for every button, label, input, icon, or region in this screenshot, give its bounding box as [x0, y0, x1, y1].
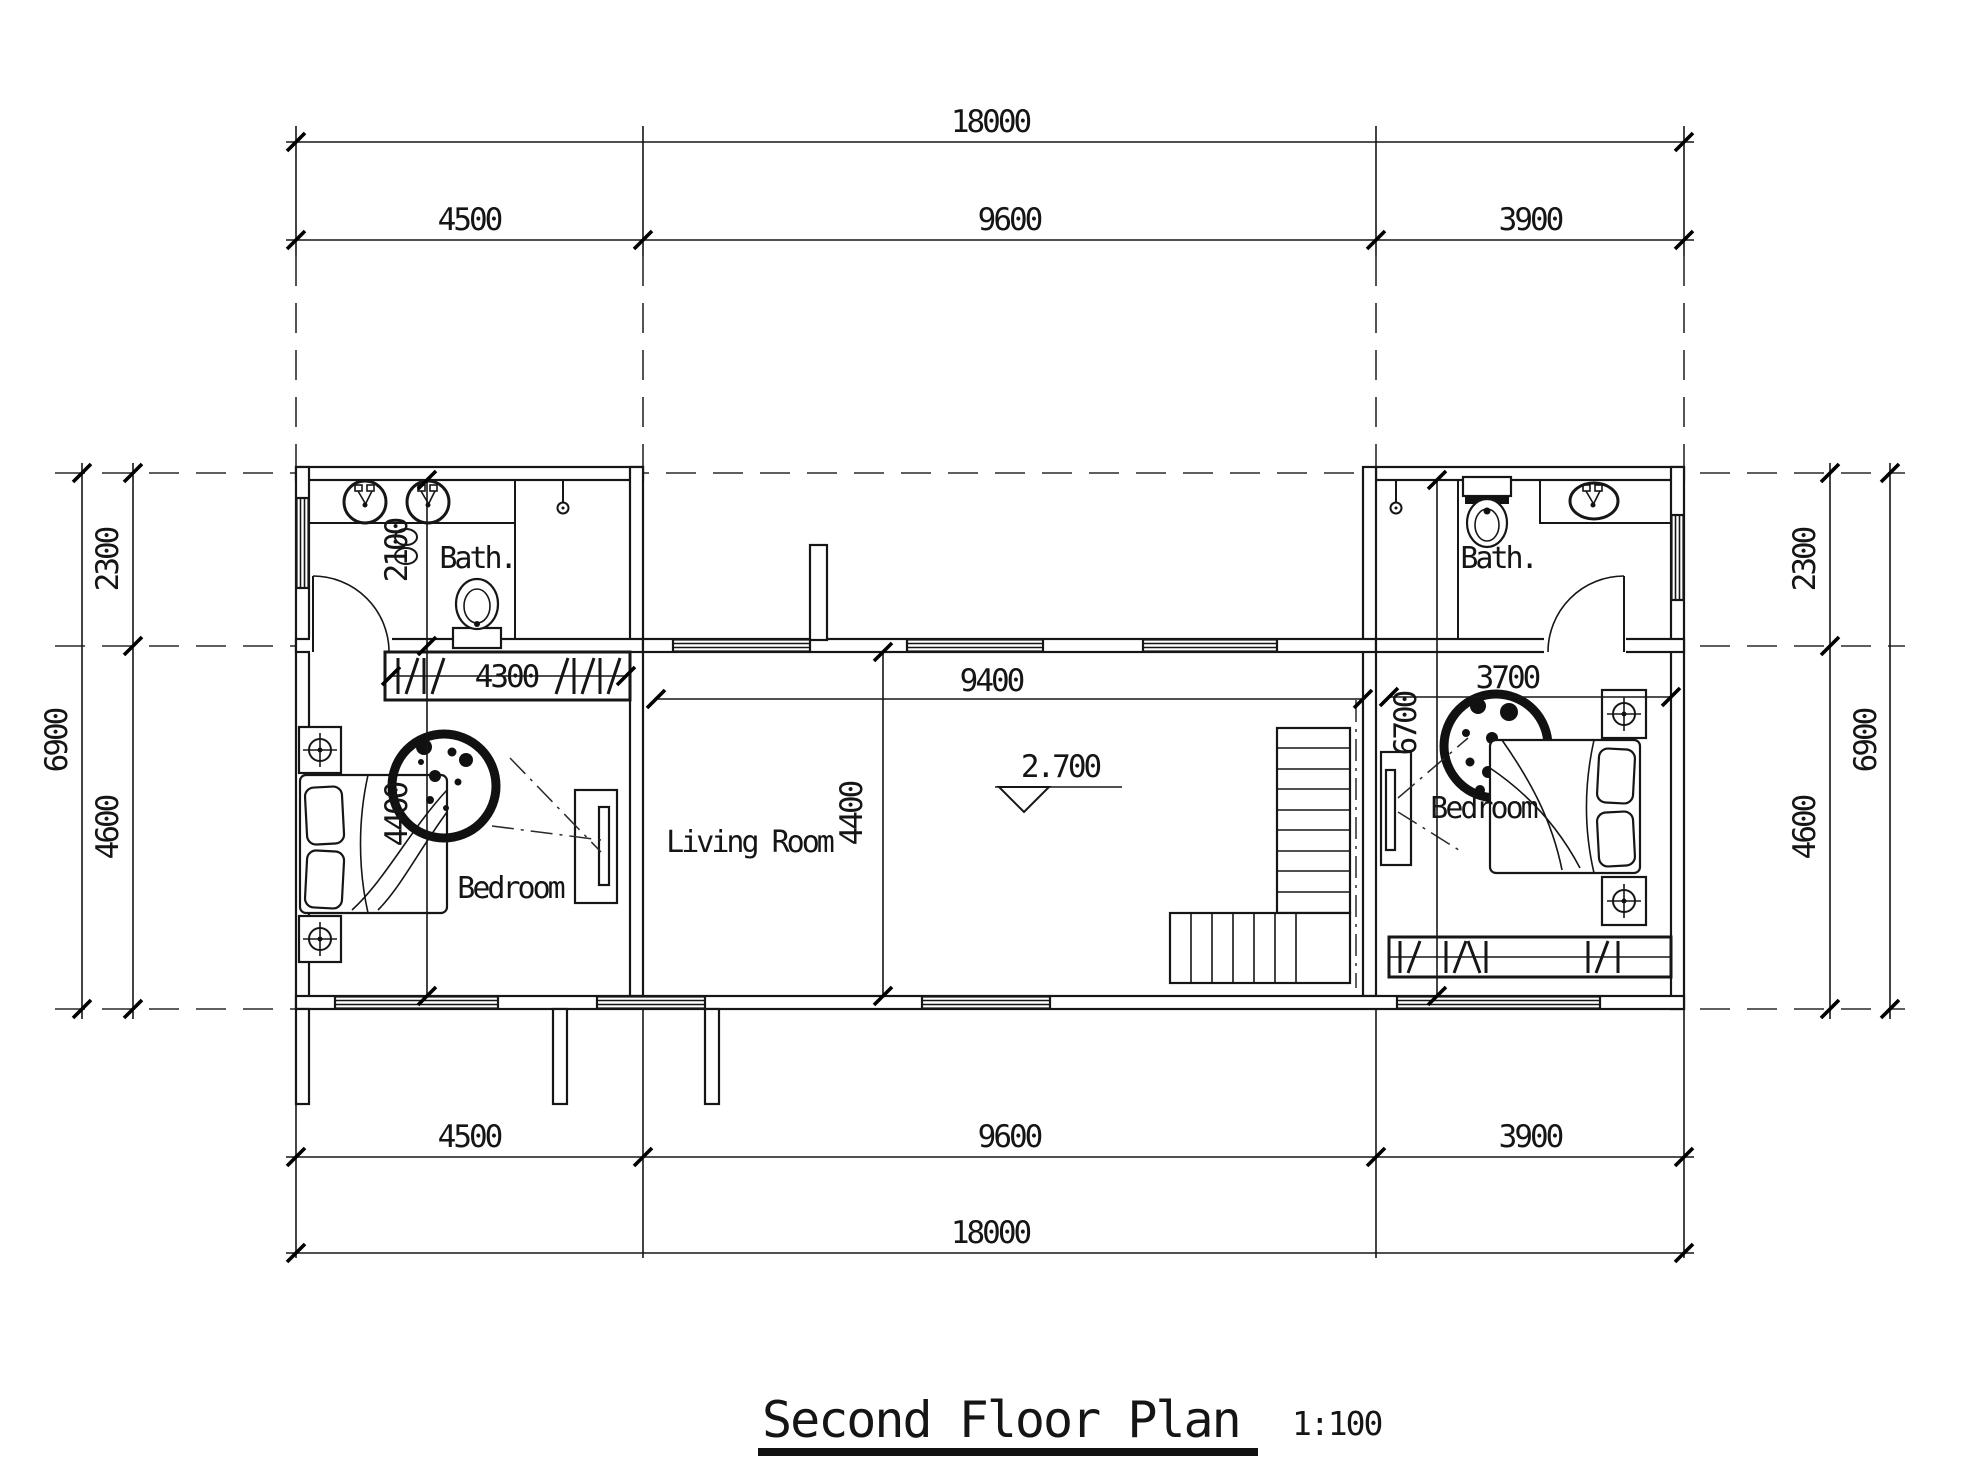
dim-bedroom-left-width: 4300	[475, 659, 539, 695]
level-value: 2.700	[1021, 749, 1101, 785]
toilet-icon	[1463, 477, 1511, 547]
nightstand-icon	[1602, 877, 1646, 925]
door-opening-left	[310, 637, 392, 654]
tv-icon	[599, 807, 609, 885]
closet-icon	[1389, 937, 1671, 977]
dim-left-overall: 6900	[39, 708, 75, 772]
floor-plan-canvas: 18000 4500 9600 3900 4500 9600 3900 1800…	[0, 0, 1987, 1470]
drawing-sheet: 18000 4500 9600 3900 4500 9600 3900 1800…	[0, 0, 1987, 1470]
sink-icon	[407, 481, 449, 523]
room-label-living: Living Room	[666, 825, 834, 860]
dim-top-overall: 18000	[951, 104, 1031, 140]
wall-stub-below-left	[296, 1009, 309, 1104]
dim-right-overall: 6900	[1848, 708, 1884, 772]
dim-right-seg2: 4600	[1787, 795, 1823, 859]
dim-bedroom-right-width: 3700	[1476, 660, 1540, 696]
door-opening-right	[1544, 637, 1626, 654]
dim-bath-left-depth: 2100	[379, 518, 415, 582]
window-icon	[297, 498, 309, 588]
shower-icon	[1391, 481, 1402, 514]
tv-icon	[1386, 770, 1395, 850]
bedroom-right	[1381, 690, 1671, 977]
window-icon	[907, 640, 1043, 652]
bedroom-left	[299, 652, 630, 962]
drawing-title: Second Floor Plan	[762, 1391, 1240, 1449]
window-icon	[1397, 997, 1600, 1009]
room-label-bedroom-left: Bedroom	[457, 871, 564, 906]
title-block: Second Floor Plan 1:100	[758, 1391, 1381, 1452]
shower-icon	[558, 481, 569, 514]
wall-stub-below-right	[705, 1009, 719, 1104]
dim-bottom-seg2: 9600	[978, 1119, 1042, 1155]
window-icon	[922, 997, 1050, 1009]
staircase	[1170, 700, 1356, 988]
toilet-icon	[453, 579, 501, 648]
wall-stub-below-mid	[553, 1009, 567, 1104]
living-room	[995, 700, 1356, 988]
nightstand-icon	[299, 916, 341, 962]
nightstand-icon	[299, 727, 341, 773]
sink-icon	[1570, 483, 1618, 519]
window-icon	[335, 997, 498, 1009]
dim-bottom-seg1: 4500	[438, 1119, 502, 1155]
dim-bedroom-left-depth: 4400	[379, 782, 415, 846]
room-label-bath-left: Bath.	[439, 541, 514, 576]
room-label-bedroom-right: Bedroom	[1430, 791, 1537, 826]
dim-top-seg2: 9600	[978, 202, 1042, 238]
room-label-bath-right: Bath.	[1460, 541, 1535, 576]
dim-living-depth: 4400	[834, 781, 870, 845]
dim-bedroom-right-depth: 6700	[1388, 691, 1424, 755]
dimension-labels: 18000 4500 9600 3900 4500 9600 3900 1800…	[39, 104, 1884, 1251]
window-icon	[1672, 515, 1684, 600]
wall-stub-above	[810, 545, 827, 640]
dim-left-seg1: 2300	[90, 527, 126, 591]
sink-icon	[344, 481, 386, 523]
dim-left-seg2: 4600	[90, 795, 126, 859]
dim-living-width: 9400	[960, 663, 1024, 699]
window-icon	[1143, 640, 1277, 652]
drawing-scale: 1:100	[1292, 1404, 1381, 1443]
dim-top-seg3: 3900	[1499, 202, 1563, 238]
window-icon	[673, 640, 810, 652]
dim-bottom-overall: 18000	[951, 1215, 1031, 1251]
bed-icon	[300, 775, 447, 913]
level-marker-icon	[995, 787, 1122, 812]
dim-top-seg1: 4500	[438, 202, 502, 238]
dim-right-seg1: 2300	[1787, 527, 1823, 591]
dim-bottom-seg3: 3900	[1499, 1119, 1563, 1155]
bathroom-right	[1391, 477, 1672, 547]
window-icon	[597, 997, 705, 1009]
